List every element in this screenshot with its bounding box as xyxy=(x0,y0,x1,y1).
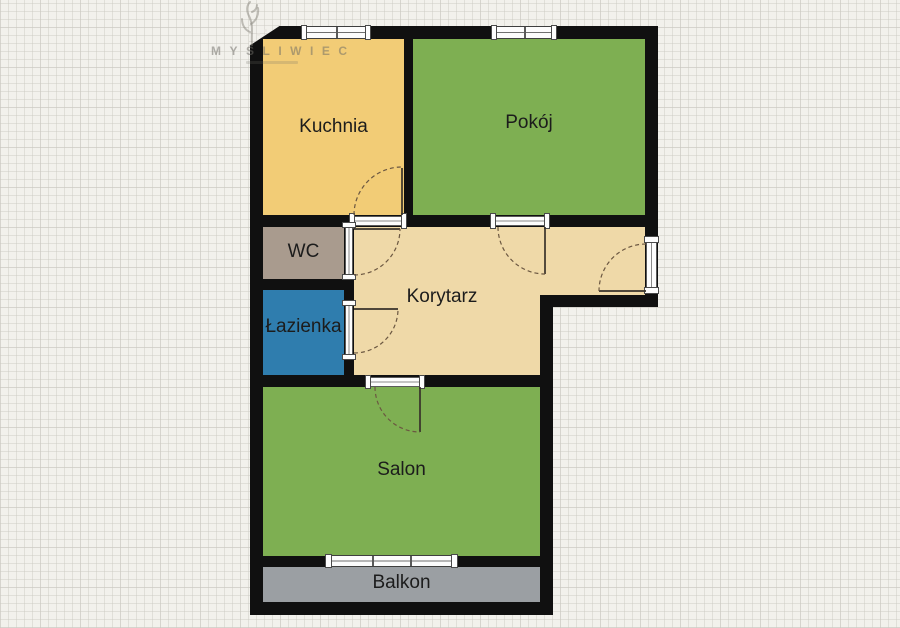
door-arc-pokoj xyxy=(498,227,545,274)
door-arc-kuchnia xyxy=(354,167,402,215)
room-label-wc: WC xyxy=(263,241,344,263)
room-label-lazienka: Łazienka xyxy=(263,316,344,338)
room-label-korytarz: Korytarz xyxy=(354,286,530,308)
watermark-brand: MYŚLIWIEC xyxy=(211,44,356,58)
watermark-logo-icon xyxy=(230,0,274,46)
door-arc-wc xyxy=(354,229,400,275)
door-arc-lazienka xyxy=(354,309,398,353)
room-label-kuchnia: Kuchnia xyxy=(263,116,404,138)
door-swings-svg xyxy=(0,0,900,628)
room-label-pokoj: Pokój xyxy=(413,112,645,134)
room-label-salon: Salon xyxy=(263,459,540,481)
door-arc-salon xyxy=(375,387,420,432)
door-arc-entrance xyxy=(599,244,646,291)
watermark-subtext xyxy=(246,61,298,64)
room-label-balkon: Balkon xyxy=(263,572,540,594)
floorplan-canvas: Kuchnia Pokój WC Łazienka Korytarz Salon… xyxy=(0,0,900,628)
